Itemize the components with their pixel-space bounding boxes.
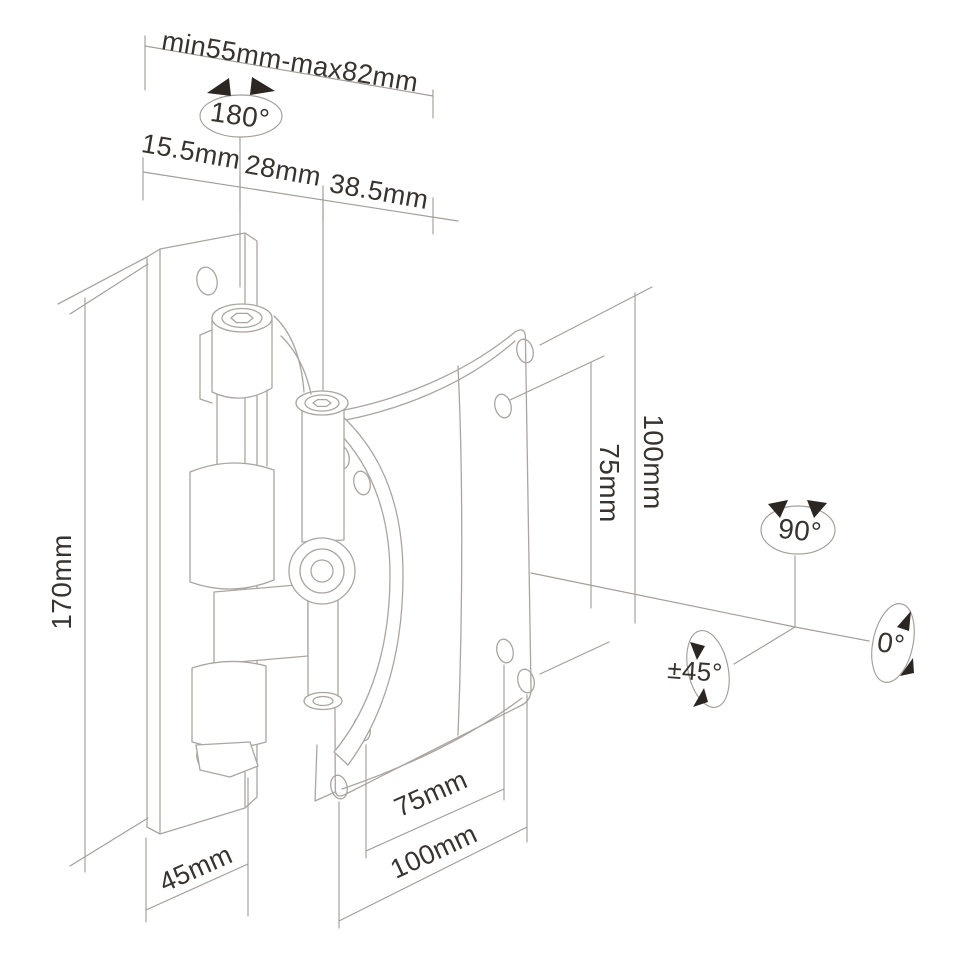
dim-label-vesa-v-inner: 75mm (595, 443, 623, 522)
angle-label-tilt: ±45° (667, 656, 724, 686)
angle-label-zero: 0° (875, 628, 906, 660)
tilt-knob (289, 538, 355, 604)
rotation-arrow-icon (207, 78, 231, 96)
dim-label-plate-height: 170mm (48, 534, 76, 629)
dim-label-vesa-v-outer: 100mm (639, 414, 667, 509)
rotation-arrow-icon (250, 77, 275, 95)
technical-diagram-page: min55mm-max82mm 180° 15.5mm 28mm 38.5mm … (0, 0, 961, 961)
angle-label-portrait: 90° (777, 515, 823, 547)
